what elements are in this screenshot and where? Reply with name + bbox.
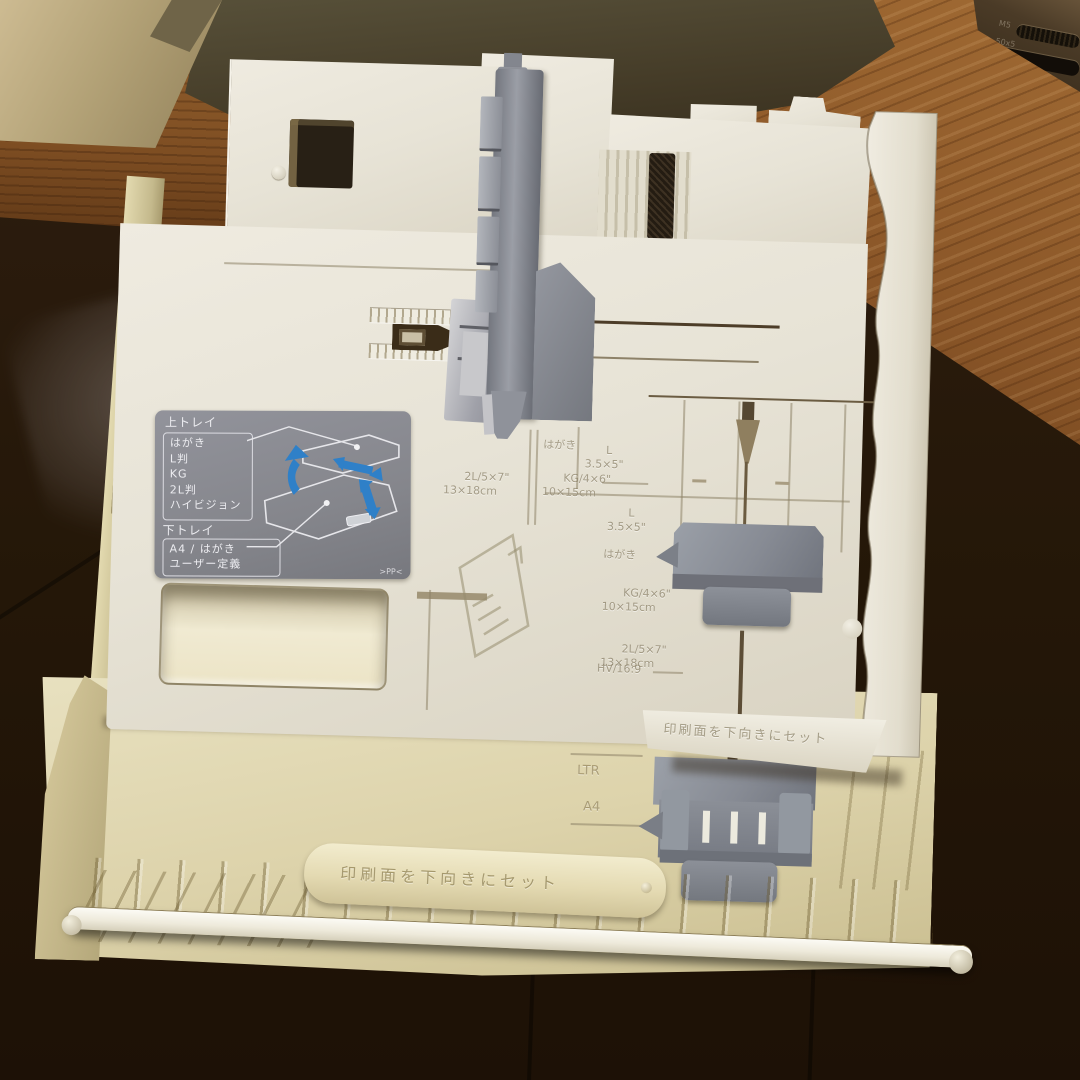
handle-screw (641, 882, 653, 894)
vent-text-1: M5 (998, 19, 1011, 30)
rmark-l: L3.5×5" (606, 492, 646, 548)
lower-tray-title: 下トレイ (163, 522, 215, 538)
guide-slot (758, 812, 766, 844)
upper-tray-title: 上トレイ (165, 414, 217, 430)
pointer-cutout-inner (399, 329, 425, 346)
vent-slot-icon (1015, 24, 1080, 49)
upper-sizes-box: はがき L判 KG 2L判 ハイビジョン (163, 432, 253, 520)
slider-ridge (476, 216, 499, 266)
guide-tower-left (660, 790, 690, 853)
mark-hagaki: はがき (543, 438, 576, 453)
paper-stack-icon (447, 528, 537, 662)
clip-inner-tab (459, 331, 489, 397)
grip-rib-pad (597, 150, 692, 245)
handle-face-down-notice: 印刷面を下向きにセット (340, 864, 561, 894)
mark-l: L3.5×5" (584, 429, 624, 485)
tray-diagram (246, 423, 406, 566)
rmark-hv: HV/16:9 (597, 662, 642, 677)
ltr-marking: LTR (577, 763, 600, 780)
guide-tower-right (778, 793, 812, 856)
latch-notch-opening (288, 119, 354, 189)
tray-instruction-label: 上トレイ はがき L判 KG 2L判 ハイビジョン 下トレイ A4 / はがき … (154, 410, 411, 579)
track-tick (775, 482, 789, 485)
tray-scalloped-edge (828, 110, 938, 757)
upper-size-3: KG (170, 467, 188, 480)
slider-ridge (478, 156, 502, 212)
blue-arrows-icon (285, 445, 383, 519)
rmark-kg: KG/4×6"10×15cm (601, 572, 671, 629)
upper-size-2: L判 (170, 452, 189, 465)
material-mark: >PP< (379, 567, 402, 576)
photo-printer-paper-tray: M5 50x5 CF LTR A4 (0, 0, 1080, 1080)
upper-size-5: ハイビジョン (170, 498, 242, 511)
guide-slot (730, 811, 738, 843)
mark-2l: 2L/5×7"13×18cm (442, 455, 510, 512)
upper-size-1: はがき (170, 436, 206, 449)
rmark-hagaki: はがき (603, 548, 636, 563)
upper-size-4: 2L判 (170, 483, 197, 496)
slider-ridge (479, 96, 503, 152)
lower-size-1: A4 / はがき (170, 542, 236, 555)
molding-dimple (272, 165, 286, 179)
stopper-latch-tab (702, 587, 791, 627)
roller-right (949, 950, 974, 975)
track-slot-notch (742, 402, 755, 422)
track-tick (692, 479, 706, 482)
tray-window-opening (158, 582, 389, 690)
lower-size-2: ユーザー定義 (169, 557, 241, 570)
lip-face-down-notice: 印刷面を下向きにセット (663, 722, 829, 749)
guide-slot (702, 811, 710, 843)
a4-marking: A4 (583, 799, 601, 816)
slider-ridge (475, 270, 498, 313)
grip-rubber-slot (647, 153, 675, 240)
paper-cassette: LTR A4 印刷面を下向きにセット (26, 26, 967, 1011)
